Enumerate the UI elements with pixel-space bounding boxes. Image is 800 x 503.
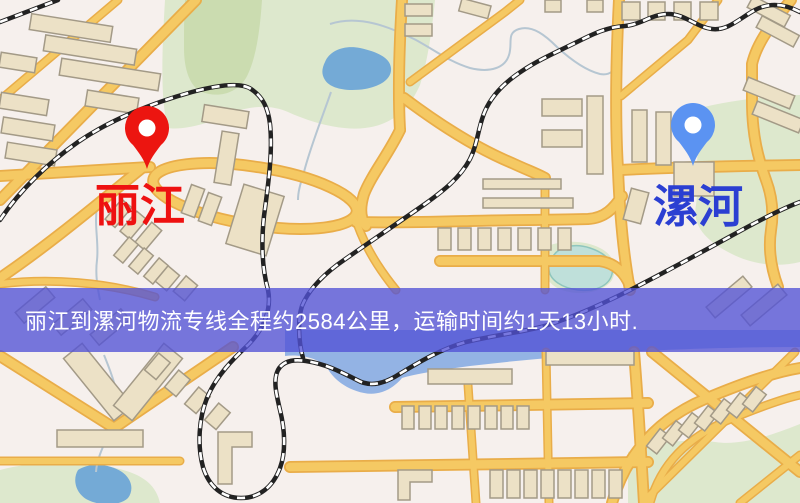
route-info-text: 丽江到漯河物流专线全程约2584公里，运输时间约1天13小时. (0, 304, 638, 336)
route-info-banner: 丽江到漯河物流专线全程约2584公里，运输时间约1天13小时. (0, 288, 800, 352)
map-screenshot: 丽江 漯河 丽江到漯河物流专线全程约2584公里，运输时间约1天13小时. (0, 0, 800, 503)
destination-pin-hole (685, 117, 702, 134)
origin-label: 丽江 (95, 180, 185, 231)
origin-pin[interactable] (125, 106, 169, 169)
origin-pin-shape (125, 106, 169, 169)
destination-label: 漯河 (653, 181, 743, 232)
origin-pin-hole (139, 120, 156, 137)
map-canvas[interactable]: 丽江 漯河 (0, 0, 800, 503)
